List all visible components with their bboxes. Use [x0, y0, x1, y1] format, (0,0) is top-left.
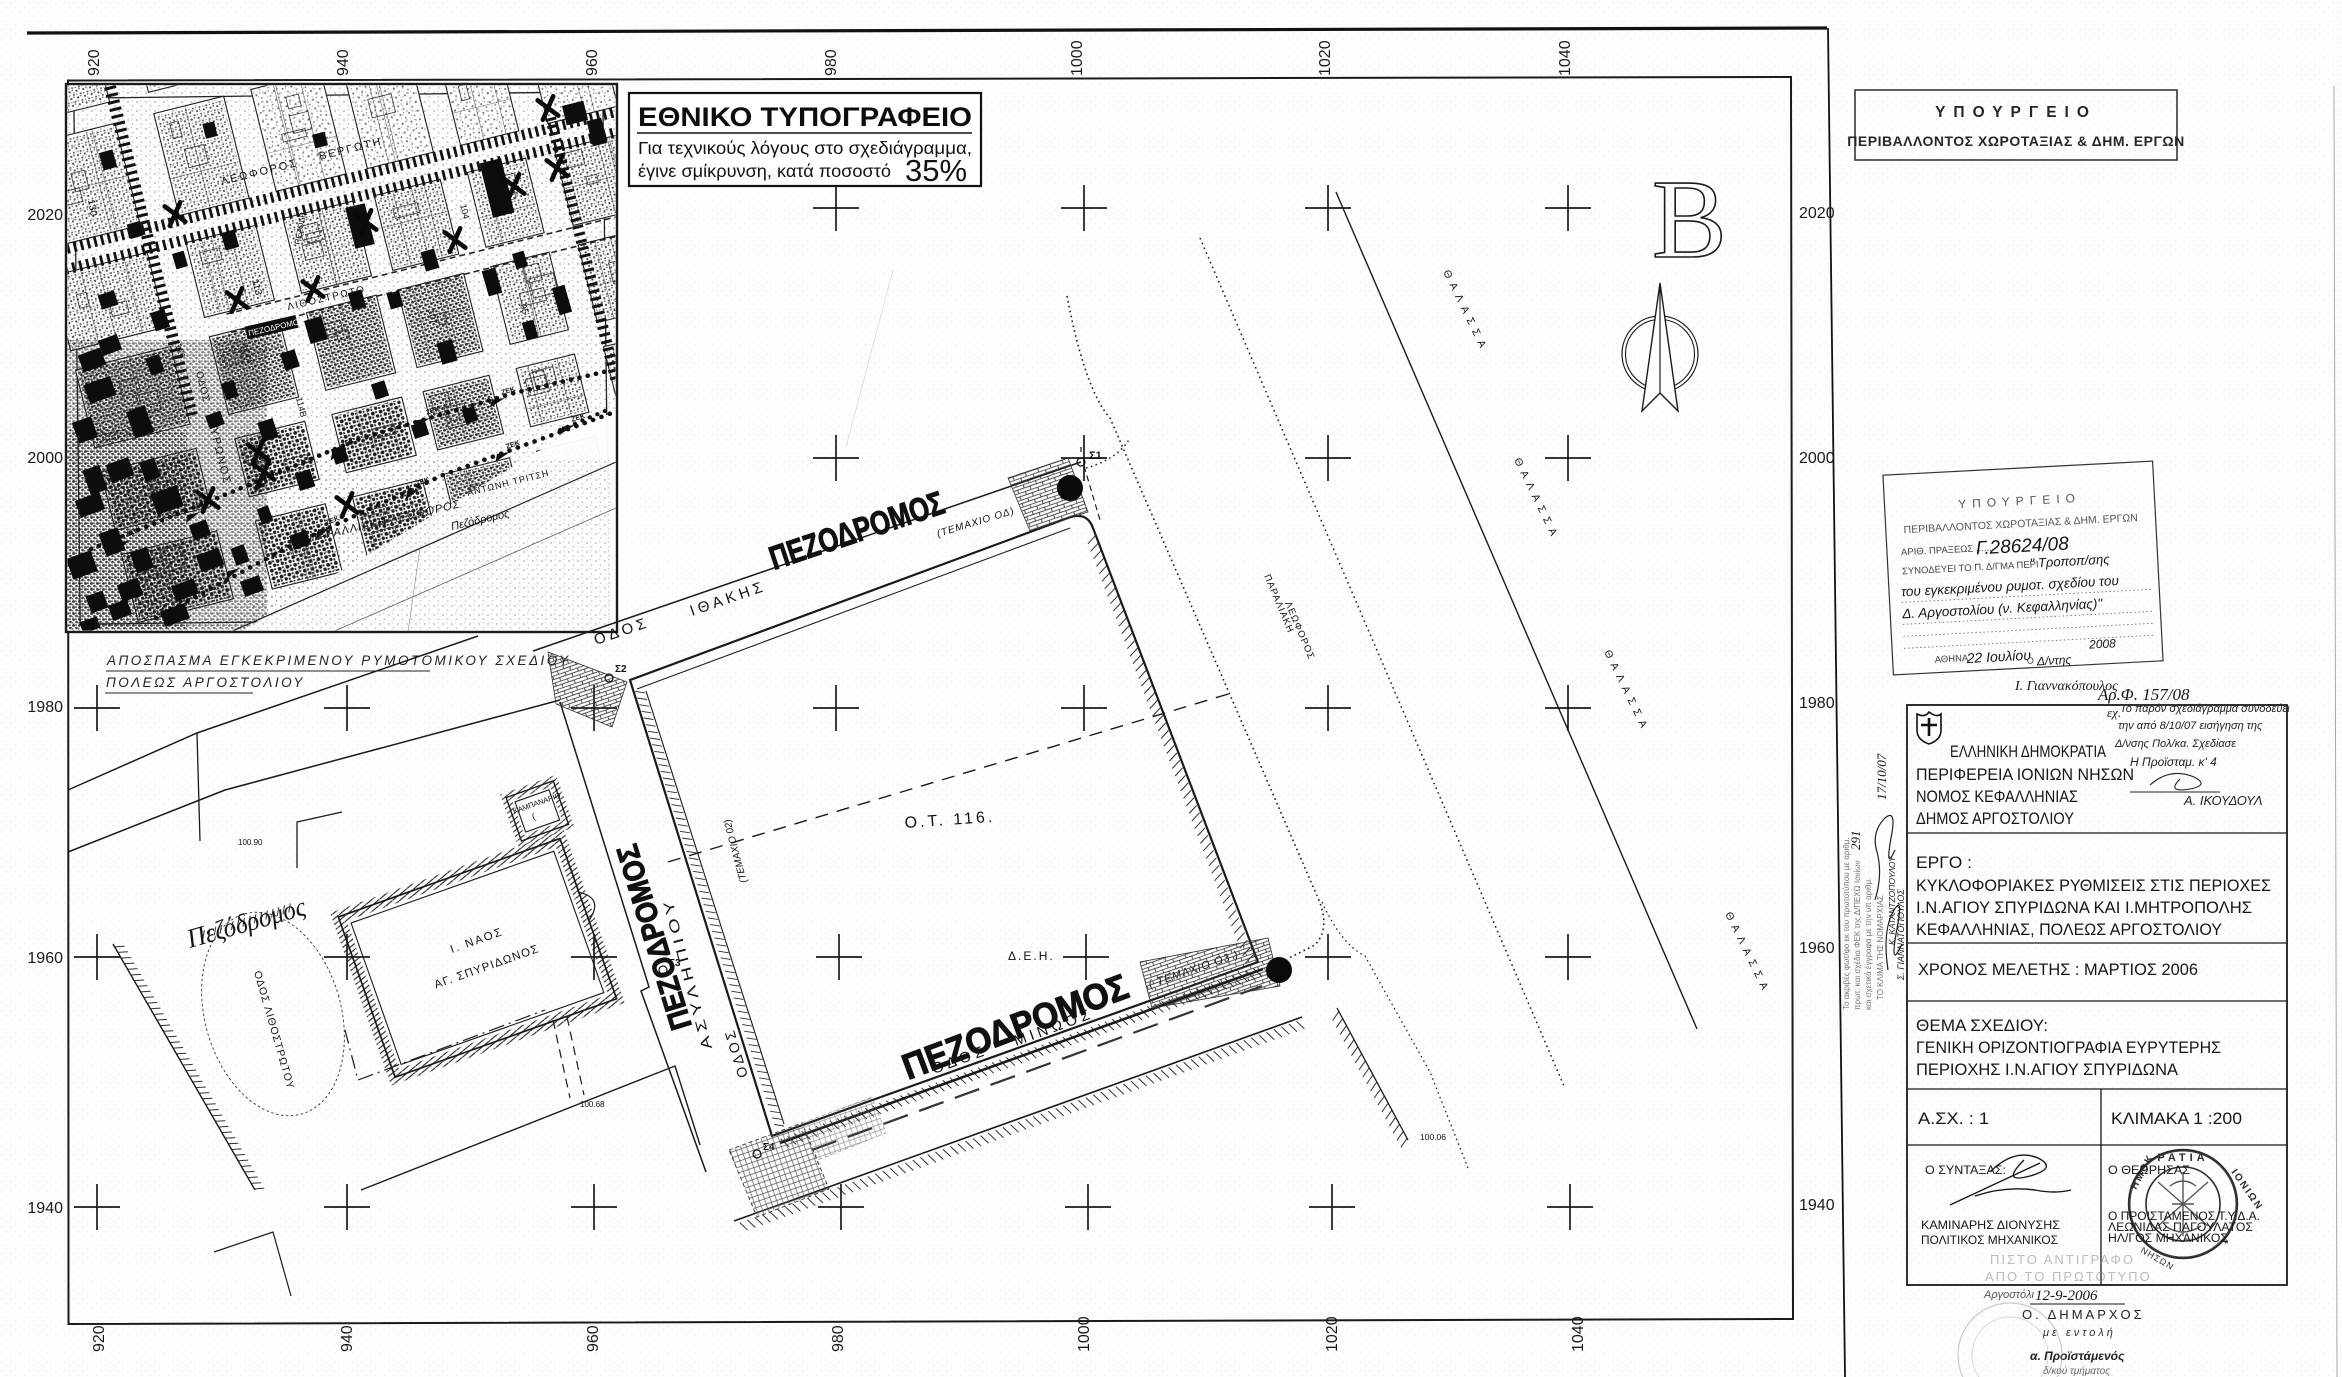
- svg-text:ΥΠΟΥΡΓΕΙΟ: ΥΠΟΥΡΓΕΙΟ: [1935, 104, 2097, 121]
- svg-text:ΑΘΗΝΑ: ΑΘΗΝΑ: [1934, 653, 1969, 666]
- svg-text:και σχετικά έγγραφα με την υπ: και σχετικά έγγραφα με την υπ αριθμ.: [1864, 878, 1873, 1010]
- svg-text:Ο: Ο: [2027, 656, 2035, 666]
- svg-text:960: 960: [584, 49, 601, 76]
- svg-text:B: B: [1652, 158, 1727, 282]
- svg-text:ΠΕΡΙΦΕΡΕΙΑ ΙΟΝΙΩΝ ΝΗΣΩΝ: ΠΕΡΙΦΕΡΕΙΑ ΙΟΝΙΩΝ ΝΗΣΩΝ: [1916, 765, 2134, 784]
- svg-text:100.90: 100.90: [238, 838, 263, 847]
- svg-text:960: 960: [585, 1325, 602, 1352]
- svg-text:1040: 1040: [1557, 40, 1574, 76]
- svg-text:980: 980: [830, 1325, 847, 1352]
- svg-text:Ο ΣΥΝΤΑΞΑΣ:: Ο ΣΥΝΤΑΞΑΣ:: [1925, 1163, 2006, 1177]
- svg-text:ΕΘΝΙΚΟ ΤΥΠΟΓΡΑΦΕΙΟ: ΕΘΝΙΚΟ ΤΥΠΟΓΡΑΦΕΙΟ: [638, 102, 972, 132]
- svg-text:920: 920: [91, 1325, 108, 1352]
- svg-text:1040: 1040: [1570, 1316, 1587, 1352]
- svg-text:Ο. ΔΗΜΑΡΧΟΣ: Ο. ΔΗΜΑΡΧΟΣ: [2022, 1307, 2145, 1322]
- svg-text:1940: 1940: [27, 1200, 63, 1217]
- svg-text:α. Προϊστάμενός: α. Προϊστάμενός: [2030, 1349, 2125, 1363]
- svg-text:Η Προϊσταμ. κ' 4: Η Προϊσταμ. κ' 4: [2130, 755, 2217, 769]
- svg-text:ΚΛΙΜΑΚΑ 1 :200: ΚΛΙΜΑΚΑ 1 :200: [2111, 1109, 2242, 1128]
- svg-text:2020: 2020: [1799, 205, 1835, 222]
- svg-text:ΠΕΡΙΒΑΛΛΟΝΤΟΣ ΧΩΡΟΤΑΞΙΑΣ &: ΠΕΡΙΒΑΛΛΟΝΤΟΣ ΧΩΡΟΤΑΞΙΑΣ & ΔΗΜ. ΕΡΓΩΝ: [1847, 133, 2184, 149]
- svg-text:την από 8/10/07 εισήγηση της: την από 8/10/07 εισήγηση της: [2118, 720, 2263, 732]
- svg-text:Σ3: Σ3: [669, 958, 681, 969]
- svg-text:1000: 1000: [1076, 1316, 1093, 1352]
- svg-text:Σ4: Σ4: [763, 1142, 775, 1153]
- svg-text:εχ.: εχ.: [2107, 705, 2121, 720]
- svg-text:ΓΕΝΙΚΗ ΟΡΙΖΟΝΤΙΟΓΡΑΦΙΑ ΕΥΡΥΤΕΡ: ΓΕΝΙΚΗ ΟΡΙΖΟΝΤΙΟΓΡΑΦΙΑ ΕΥΡΥΤΕΡΗΣ: [1916, 1038, 2221, 1057]
- svg-text:ΝΟΜΟΣ ΚΕΦΑΛΛΗΝΙΑΣ: ΝΟΜΟΣ ΚΕΦΑΛΛΗΝΙΑΣ: [1916, 787, 2078, 806]
- svg-text:ΤΟ ΚΛΙΜΑ ΤΗΣ ΝΟΜΑΡΧΙΑΣ: ΤΟ ΚΛΙΜΑ ΤΗΣ ΝΟΜΑΡΧΙΑΣ: [1876, 895, 1885, 1000]
- svg-text:Α. ΙΚΟΥΔΟΥΛ: Α. ΙΚΟΥΔΟΥΛ: [2183, 793, 2263, 808]
- svg-text:Το ακριβές φωτ/φο εκ του πρωτο: Το ακριβές φωτ/φο εκ του πρωτοτύπου με α…: [1842, 837, 1851, 1010]
- svg-text:ΘΕΜΑ ΣΧΕΔΙΟΥ:: ΘΕΜΑ ΣΧΕΔΙΟΥ:: [1916, 1016, 2048, 1035]
- svg-text:Α.ΣΧ. : 1: Α.ΣΧ. : 1: [1918, 1109, 1989, 1128]
- svg-text:12-9-2006: 12-9-2006: [2035, 1288, 2098, 1304]
- svg-text:1980: 1980: [1799, 695, 1835, 712]
- svg-text:ΚΕΦΑΛΛΗΝΙΑΣ, ΠΟΛΕΩΣ ΑΡΓΟΣΤΟΛΙΟ: ΚΕΦΑΛΛΗΝΙΑΣ, ΠΟΛΕΩΣ ΑΡΓΟΣΤΟΛΙΟΥ: [1916, 920, 2222, 939]
- svg-text:2000: 2000: [1799, 450, 1835, 467]
- svg-text:έγινε σμίκρυνση, κατά ποσοστό: έγινε σμίκρυνση, κατά ποσοστό: [638, 161, 891, 181]
- svg-text:Δ/νσης Πολ/κα. Σχεδίασε: Δ/νσης Πολ/κα. Σχεδίασε: [2114, 738, 2236, 750]
- svg-text:ΠΟΛΕΩΣ ΑΡΓΟΣΤΟΛΙΟΥ: ΠΟΛΕΩΣ ΑΡΓΟΣΤΟΛΙΟΥ: [106, 675, 305, 690]
- svg-text:2000: 2000: [27, 450, 63, 467]
- svg-text:1020: 1020: [1324, 1316, 1341, 1352]
- svg-text:ΠΕΡΙΟΧΗΣ Ι.Ν.ΑΓΙΟΥ ΣΠΥΡΙΔΩΝΑ: ΠΕΡΙΟΧΗΣ Ι.Ν.ΑΓΙΟΥ ΣΠΥΡΙΔΩΝΑ: [1916, 1060, 2179, 1079]
- svg-text:291: 291: [1848, 831, 1863, 851]
- svg-text:Αρ.Φ. 157/08: Αρ.Φ. 157/08: [2097, 685, 2190, 704]
- svg-text:Ι.Ν.ΑΓΙΟΥ ΣΠΥΡΙΔΩΝΑ ΚΑΙ Ι.ΜΗΤΡ: Ι.Ν.ΑΓΙΟΥ ΣΠΥΡΙΔΩΝΑ ΚΑΙ Ι.ΜΗΤΡΟΠΟΛΗΣ: [1916, 898, 2252, 917]
- svg-text:Το παρόν σχεδιάγραμμα συνοδεύε: Το παρόν σχεδιάγραμμα συνοδεύει: [2120, 703, 2290, 715]
- svg-text:Σ. ΓΙΑΝΝΑΤΟΠΟΥΛΟΣ: Σ. ΓΙΑΝΝΑΤΟΠΟΥΛΟΣ: [1896, 889, 1906, 981]
- svg-text:1980: 1980: [27, 699, 63, 716]
- svg-text:Δ/ντης: Δ/ντης: [2036, 653, 2072, 669]
- svg-text:ΗΛ/ΓΟΣ ΜΗΧΑΝΙΚΟΣ: ΗΛ/ΓΟΣ ΜΗΧΑΝΙΚΟΣ: [2108, 1233, 2228, 1245]
- svg-text:2008: 2008: [2088, 636, 2117, 651]
- svg-text:100.06: 100.06: [1420, 1132, 1446, 1142]
- svg-text:980: 980: [823, 49, 840, 76]
- svg-text:Σ2: Σ2: [615, 664, 627, 675]
- svg-text:ΑΠΟ ΤΟ ΠΡΩΤΟΤΥΠΟ: ΑΠΟ ΤΟ ΠΡΩΤΟΤΥΠΟ: [1985, 1269, 2152, 1284]
- svg-text:πρωτ. και σχέδια ΦΕΚ της Δ/ΠΕΧ: πρωτ. και σχέδια ΦΕΚ της Δ/ΠΕΧΩ Ιονίων: [1853, 860, 1862, 1010]
- svg-text:ΠΙΣΤΟ ΑΝΤΙΓΡΑΦΟ: ΠΙΣΤΟ ΑΝΤΙΓΡΑΦΟ: [1990, 1252, 2135, 1267]
- svg-text:ΠΟΛΙΤΙΚΟΣ ΜΗΧΑΝΙΚΟΣ: ΠΟΛΙΤΙΚΟΣ ΜΗΧΑΝΙΚΟΣ: [1921, 1233, 2058, 1247]
- svg-text:Δ.Ε.Η.: Δ.Ε.Η.: [1008, 949, 1055, 963]
- svg-text:με εντολή: με εντολή: [2042, 1327, 2116, 1339]
- svg-text:ΚΥΚΛΟΦΟΡΙΑΚΕΣ ΡΥΘΜΙΣΕΙΣ ΣΤΙΣ Π: ΚΥΚΛΟΦΟΡΙΑΚΕΣ ΡΥΘΜΙΣΕΙΣ ΣΤΙΣ ΠΕΡΙΟΧΕΣ: [1916, 876, 2271, 895]
- svg-text:940: 940: [335, 49, 352, 76]
- svg-text:ΕΡΓΟ :: ΕΡΓΟ :: [1916, 853, 1972, 872]
- svg-text:ΡΑΤΙΑ: ΡΑΤΙΑ: [2157, 1152, 2208, 1164]
- svg-text:920: 920: [86, 49, 103, 76]
- svg-text:δ/κού τμήματος: δ/κού τμήματος: [2043, 1365, 2110, 1377]
- svg-text:ΧΡΟΝΟΣ ΜΕΛΕΤΗΣ : ΜΑΡΤΙΟΣ 200: ΧΡΟΝΟΣ ΜΕΛΕΤΗΣ : ΜΑΡΤΙΟΣ 2006: [1918, 960, 2198, 979]
- svg-text:17/10/07: 17/10/07: [1874, 753, 1889, 800]
- svg-text:ΚΑΜΙΝΑΡΗΣ ΔΙΟΝΥΣΗΣ: ΚΑΜΙΝΑΡΗΣ ΔΙΟΝΥΣΗΣ: [1921, 1218, 2060, 1232]
- svg-text:1000: 1000: [1069, 40, 1086, 76]
- svg-text:Αργοστόλι: Αργοστόλι: [1983, 1289, 2035, 1301]
- svg-text:ΔΗΜΟΣ ΑΡΓΟΣΤΟΛΙΟΥ: ΔΗΜΟΣ ΑΡΓΟΣΤΟΛΙΟΥ: [1916, 809, 2074, 828]
- svg-text:Σ1: Σ1: [1089, 450, 1102, 462]
- svg-text:35%: 35%: [905, 153, 967, 188]
- svg-text:ΕΛΛΗΝΙΚΗ ΔΗΜΟΚΡΑΤΙΑ: ΕΛΛΗΝΙΚΗ ΔΗΜΟΚΡΑΤΙΑ: [1950, 742, 2107, 761]
- svg-text:Κ. ΚΑΤΑΝΤΖΟΠΟΥΛΟΥ: Κ. ΚΑΤΑΝΤΖΟΠΟΥΛΟΥ: [1887, 855, 1897, 945]
- svg-text:1960: 1960: [27, 950, 63, 967]
- svg-text:940: 940: [339, 1325, 356, 1352]
- svg-text:2020: 2020: [27, 207, 63, 224]
- svg-text:1960: 1960: [1799, 940, 1835, 957]
- svg-text:1020: 1020: [1317, 40, 1334, 76]
- svg-text:100.68: 100.68: [580, 1100, 605, 1109]
- svg-text:1940: 1940: [1799, 1197, 1835, 1214]
- svg-text:ΑΠΟΣΠΑΣΜΑ ΕΓΚΕΚΡΙΜΕΝΟΥ ΡΥΜ: ΑΠΟΣΠΑΣΜΑ ΕΓΚΕΚΡΙΜΕΝΟΥ ΡΥΜΟΤΟΜΙΚΟΥ ΣΧΕΔΙ…: [106, 653, 571, 668]
